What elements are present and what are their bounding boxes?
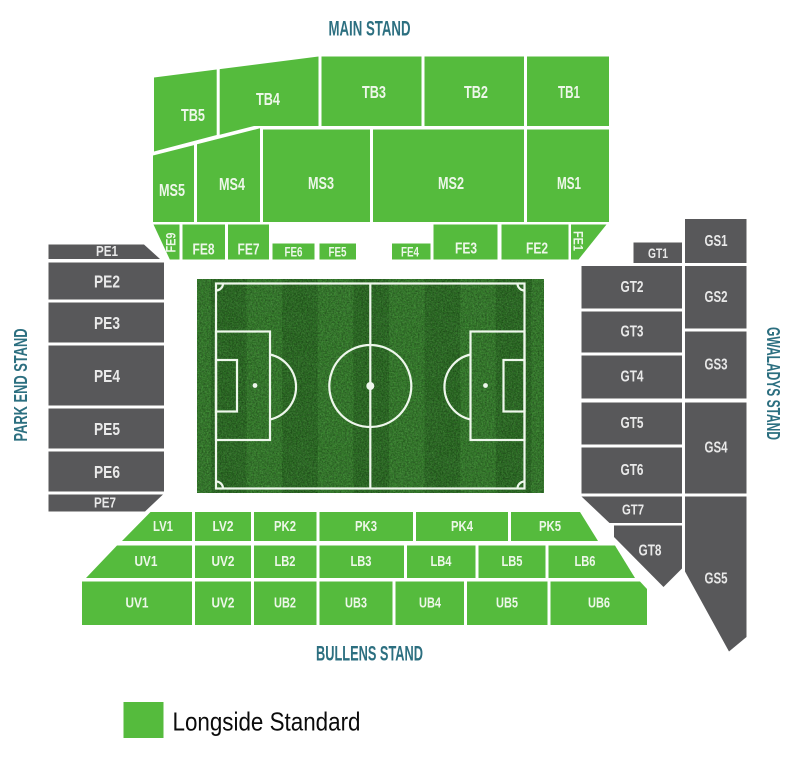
svg-text:MAIN STAND: MAIN STAND bbox=[329, 18, 411, 41]
svg-text:GT2: GT2 bbox=[621, 279, 644, 296]
svg-text:UV2: UV2 bbox=[212, 554, 235, 570]
svg-text:TB3: TB3 bbox=[362, 82, 386, 102]
svg-text:FE5: FE5 bbox=[329, 245, 347, 260]
svg-text:MS3: MS3 bbox=[308, 173, 334, 193]
svg-text:FE8: FE8 bbox=[193, 242, 215, 259]
svg-text:GS1: GS1 bbox=[705, 233, 728, 250]
svg-text:GT6: GT6 bbox=[621, 462, 644, 479]
svg-text:TB5: TB5 bbox=[181, 105, 205, 125]
svg-text:UB2: UB2 bbox=[274, 596, 296, 612]
svg-text:FE3: FE3 bbox=[455, 241, 477, 258]
svg-text:PE3: PE3 bbox=[94, 313, 120, 333]
svg-text:PE6: PE6 bbox=[94, 462, 120, 482]
svg-text:GT5: GT5 bbox=[621, 415, 644, 432]
svg-text:LB2: LB2 bbox=[275, 554, 296, 570]
svg-text:GT3: GT3 bbox=[621, 324, 644, 341]
svg-text:UB4: UB4 bbox=[419, 596, 441, 612]
svg-text:MS5: MS5 bbox=[159, 180, 185, 200]
svg-text:UB3: UB3 bbox=[345, 596, 367, 612]
svg-text:UB5: UB5 bbox=[496, 596, 518, 612]
svg-text:GT1: GT1 bbox=[648, 246, 668, 261]
svg-text:FE2: FE2 bbox=[526, 241, 548, 258]
svg-text:FE4: FE4 bbox=[401, 245, 419, 260]
svg-text:PE4: PE4 bbox=[94, 366, 120, 386]
svg-text:UB6: UB6 bbox=[588, 596, 610, 612]
svg-text:GT8: GT8 bbox=[639, 543, 662, 560]
svg-text:FE9: FE9 bbox=[164, 233, 179, 253]
svg-text:TB1: TB1 bbox=[558, 82, 580, 102]
svg-text:UV2: UV2 bbox=[212, 596, 235, 612]
svg-text:UV1: UV1 bbox=[126, 596, 149, 612]
svg-text:GT7: GT7 bbox=[622, 503, 644, 519]
svg-text:GWALADYS STAND: GWALADYS STAND bbox=[763, 327, 783, 440]
svg-text:TB4: TB4 bbox=[256, 89, 280, 109]
svg-text:MS2: MS2 bbox=[438, 173, 464, 193]
svg-text:LB3: LB3 bbox=[351, 554, 372, 570]
svg-text:UV1: UV1 bbox=[135, 554, 158, 570]
svg-text:PE7: PE7 bbox=[94, 496, 116, 512]
svg-text:FE1: FE1 bbox=[571, 231, 586, 251]
svg-text:GS4: GS4 bbox=[705, 440, 728, 457]
svg-text:MS1: MS1 bbox=[557, 173, 581, 193]
svg-text:GT4: GT4 bbox=[621, 369, 644, 386]
svg-text:PK4: PK4 bbox=[451, 519, 473, 535]
svg-text:Longside Standard: Longside Standard bbox=[173, 707, 361, 737]
svg-text:FE7: FE7 bbox=[238, 242, 260, 259]
svg-text:FE6: FE6 bbox=[285, 245, 303, 260]
svg-text:LV1: LV1 bbox=[153, 519, 173, 535]
svg-text:PE5: PE5 bbox=[94, 419, 120, 439]
svg-text:BULLENS STAND: BULLENS STAND bbox=[316, 643, 423, 666]
svg-text:GS5: GS5 bbox=[705, 571, 728, 588]
svg-text:LB6: LB6 bbox=[575, 554, 596, 570]
svg-text:PK5: PK5 bbox=[539, 519, 561, 535]
svg-text:TB2: TB2 bbox=[464, 82, 488, 102]
svg-text:PARK END STAND: PARK END STAND bbox=[11, 329, 31, 442]
svg-text:PE2: PE2 bbox=[94, 272, 120, 292]
svg-text:LB4: LB4 bbox=[431, 554, 452, 570]
svg-text:LB5: LB5 bbox=[502, 554, 523, 570]
svg-text:PK3: PK3 bbox=[355, 519, 377, 535]
svg-text:PK2: PK2 bbox=[274, 519, 296, 535]
svg-text:MS4: MS4 bbox=[219, 174, 245, 194]
svg-text:GS2: GS2 bbox=[705, 289, 728, 306]
svg-text:LV2: LV2 bbox=[213, 519, 234, 535]
svg-text:GS3: GS3 bbox=[705, 357, 728, 374]
svg-text:PE1: PE1 bbox=[96, 244, 118, 260]
